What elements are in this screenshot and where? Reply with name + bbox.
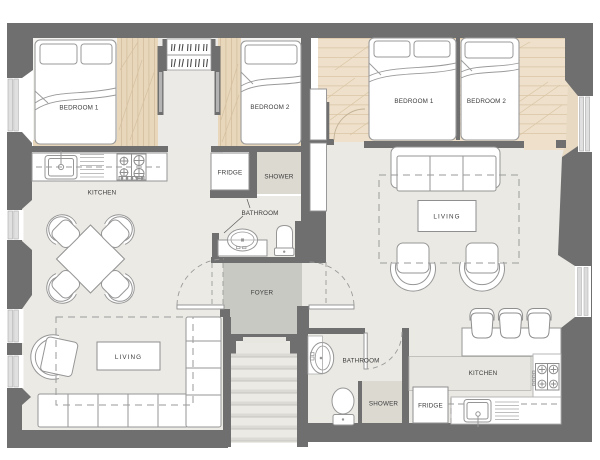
svg-text:SHOWER: SHOWER bbox=[369, 401, 399, 408]
svg-text:LIVING: LIVING bbox=[433, 214, 460, 221]
svg-text:FOYER: FOYER bbox=[251, 290, 274, 297]
svg-text:BEDROOM 1: BEDROOM 1 bbox=[394, 98, 433, 105]
svg-text:SHOWER: SHOWER bbox=[264, 174, 294, 181]
svg-text:KITCHEN: KITCHEN bbox=[88, 190, 117, 197]
svg-text:KITCHEN: KITCHEN bbox=[469, 370, 498, 377]
svg-text:LIVING: LIVING bbox=[115, 354, 142, 361]
svg-text:FRIDGE: FRIDGE bbox=[418, 403, 443, 410]
svg-text:BATHROOM: BATHROOM bbox=[241, 210, 278, 217]
svg-text:BEDROOM 2: BEDROOM 2 bbox=[467, 98, 506, 105]
svg-text:BATHROOM: BATHROOM bbox=[342, 358, 379, 365]
svg-text:BEDROOM 2: BEDROOM 2 bbox=[250, 104, 289, 111]
svg-text:FRIDGE: FRIDGE bbox=[218, 170, 243, 177]
svg-text:BEDROOM 1: BEDROOM 1 bbox=[59, 105, 98, 112]
